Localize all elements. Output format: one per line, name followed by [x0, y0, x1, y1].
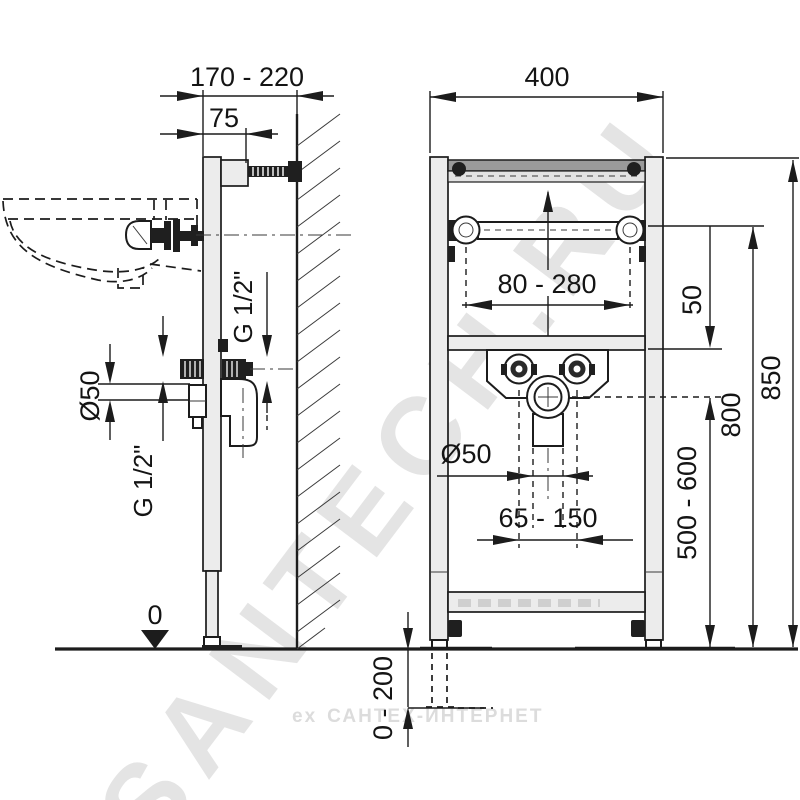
anchor-rod-threads	[253, 167, 283, 176]
rail-tab-left	[448, 246, 455, 262]
drain-elbow	[221, 379, 257, 446]
leg-extension-dashed	[426, 653, 493, 708]
frame-right-upright	[645, 157, 663, 640]
dim-rail-height-label: 800	[716, 392, 746, 437]
washbasin-outline	[3, 199, 201, 288]
label-water-conn-lower: G 1/2"	[128, 316, 168, 517]
floor-datum: 0	[141, 600, 169, 649]
dim-stud-spacing-label: 80 - 280	[497, 269, 596, 299]
fixing-stud-right	[617, 217, 644, 244]
rail-tab-right	[639, 246, 646, 262]
frame-leg-side	[206, 571, 218, 639]
faucet-spout	[126, 221, 151, 249]
dim-bracket-offset-label: 75	[209, 103, 239, 133]
dim-frame-height-label: 850	[756, 355, 786, 400]
mid-crossmember	[448, 336, 645, 350]
site-watermark-name: САНТЕХ-ИНТЕРНЕТ	[327, 706, 543, 727]
dim-drain-diameter-front-label: Ø50	[440, 439, 491, 469]
foot-base-plate	[202, 645, 242, 650]
faucet-washer	[173, 219, 180, 252]
dim-bracket-offset: 75	[160, 103, 278, 163]
dim-drain-diameter-side: Ø50	[75, 344, 190, 440]
site-watermark-logo: ex	[292, 706, 317, 727]
installation-frame-drawing: SANTECH.RU exСАНТЕХ-ИНТЕРНЕТ	[0, 0, 800, 800]
wall-anchor	[288, 161, 302, 182]
adjuster-knob-left	[448, 620, 462, 637]
floor-datum-label: 0	[147, 600, 162, 630]
dim-drain-height-label: 500 - 600	[672, 446, 702, 560]
dim-leg-extension-label: 0 - 200	[368, 656, 398, 740]
fixing-stud-left	[453, 217, 480, 244]
frame-left-upright	[430, 157, 448, 640]
top-bolt-right	[627, 162, 641, 176]
site-watermark: exСАНТЕХ-ИНТЕРНЕТ	[292, 706, 543, 727]
dim-depth-range-label: 170 - 220	[190, 62, 304, 92]
adjuster-knob-right	[631, 620, 645, 637]
dim-conn-spacing-label: 65 - 150	[498, 503, 597, 533]
bottom-crossmember	[448, 592, 645, 612]
faucet-flange	[164, 221, 171, 250]
mount-tab	[218, 339, 228, 352]
dim-rail-to-conn-label: 50	[677, 285, 707, 315]
dim-frame-width-label: 400	[524, 62, 569, 92]
faucet	[126, 219, 204, 252]
label-water-conn-upper-text: G 1/2"	[228, 271, 258, 344]
anchor-rod	[248, 166, 292, 177]
datum-arrow	[141, 630, 169, 649]
top-bolt-left	[452, 162, 466, 176]
top-crossmember	[448, 160, 645, 182]
dim-drain-diameter-side-label: Ø50	[75, 370, 105, 421]
dim-depth-range: 170 - 220	[160, 62, 334, 156]
technical-drawing-page: SANTECH.RU exСАНТЕХ-ИНТЕРНЕТ	[0, 0, 800, 800]
water-fitting-rear	[222, 359, 246, 379]
wall-bracket	[221, 160, 302, 186]
label-water-conn-lower-text: G 1/2"	[128, 445, 158, 518]
front-view: 400 80 - 280 50 500 - 600	[368, 62, 799, 747]
